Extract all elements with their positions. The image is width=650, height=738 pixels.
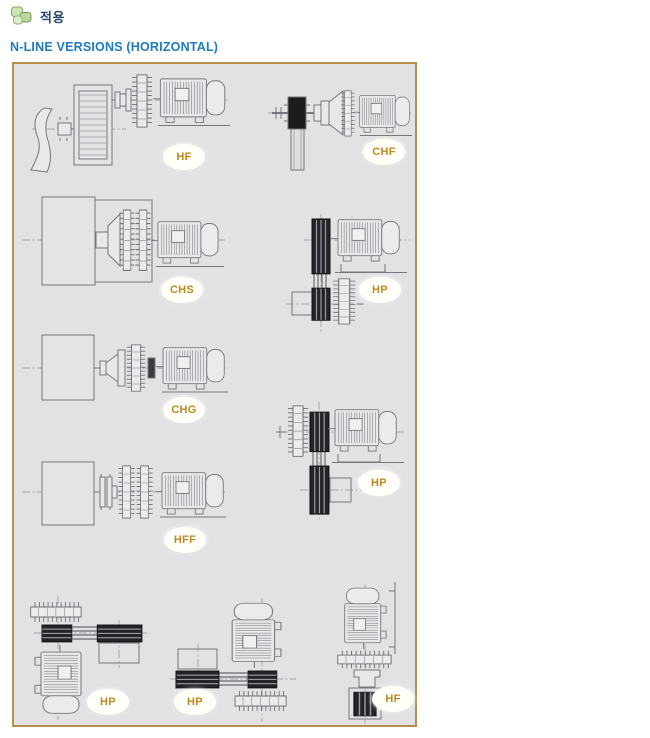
fan-box-icon <box>292 292 312 315</box>
diagram-hp-belt-drive-1 <box>286 214 410 332</box>
page: 적용 N-LINE VERSIONS (HORIZONTAL) <box>0 0 650 738</box>
diagram-label-hff: HFF <box>164 527 206 553</box>
diagram-label-chf: CHF <box>363 139 405 165</box>
diagram-label-hp-1: HP <box>359 277 401 303</box>
diagram-hff-horizontal <box>22 462 228 525</box>
diagram-panel: HF CHF CHS HP CHG HP HFF HP HP HF <box>12 62 417 727</box>
cone-coupling-icon <box>329 91 343 135</box>
page-title: N-LINE VERSIONS (HORIZONTAL) <box>10 40 218 54</box>
diagram-chs-horizontal <box>22 197 226 285</box>
diagram-label-hf-2: HF <box>372 686 414 712</box>
fan-casing-icon <box>42 335 94 400</box>
diagram-label-hf-1: HF <box>163 144 205 170</box>
fan-box-icon <box>178 649 217 669</box>
shaft-block-icon <box>288 97 306 129</box>
wall-bracket-icon <box>389 591 395 647</box>
diagram-chg-horizontal <box>22 335 228 400</box>
diagram-label-hp-2: HP <box>358 470 400 496</box>
diagram-label-hp-3: HP <box>87 689 129 715</box>
fan-blade-icon <box>31 108 52 172</box>
belt-icon <box>314 274 326 288</box>
cone-coupling-icon <box>106 354 118 382</box>
diagram-label-hp-4: HP <box>174 689 216 715</box>
diagram-hp-belt-drive-2 <box>276 402 406 522</box>
puzzle-leaf-icon <box>10 5 34 27</box>
fan-casing-icon <box>42 197 95 285</box>
support-column-icon <box>291 129 304 170</box>
page-header: 적용 <box>10 5 65 27</box>
section-title: 적용 <box>40 7 65 26</box>
diagram-label-chg: CHG <box>163 397 205 423</box>
diagram-canvas <box>14 64 415 725</box>
flange-icon <box>100 477 105 507</box>
fan-hub-icon <box>58 123 71 135</box>
cone-coupling-icon <box>354 670 380 687</box>
flange-icon <box>107 477 112 507</box>
fan-casing-icon <box>42 462 94 525</box>
bell-coupling-icon <box>108 214 120 266</box>
diagram-label-chs: CHS <box>161 277 203 303</box>
